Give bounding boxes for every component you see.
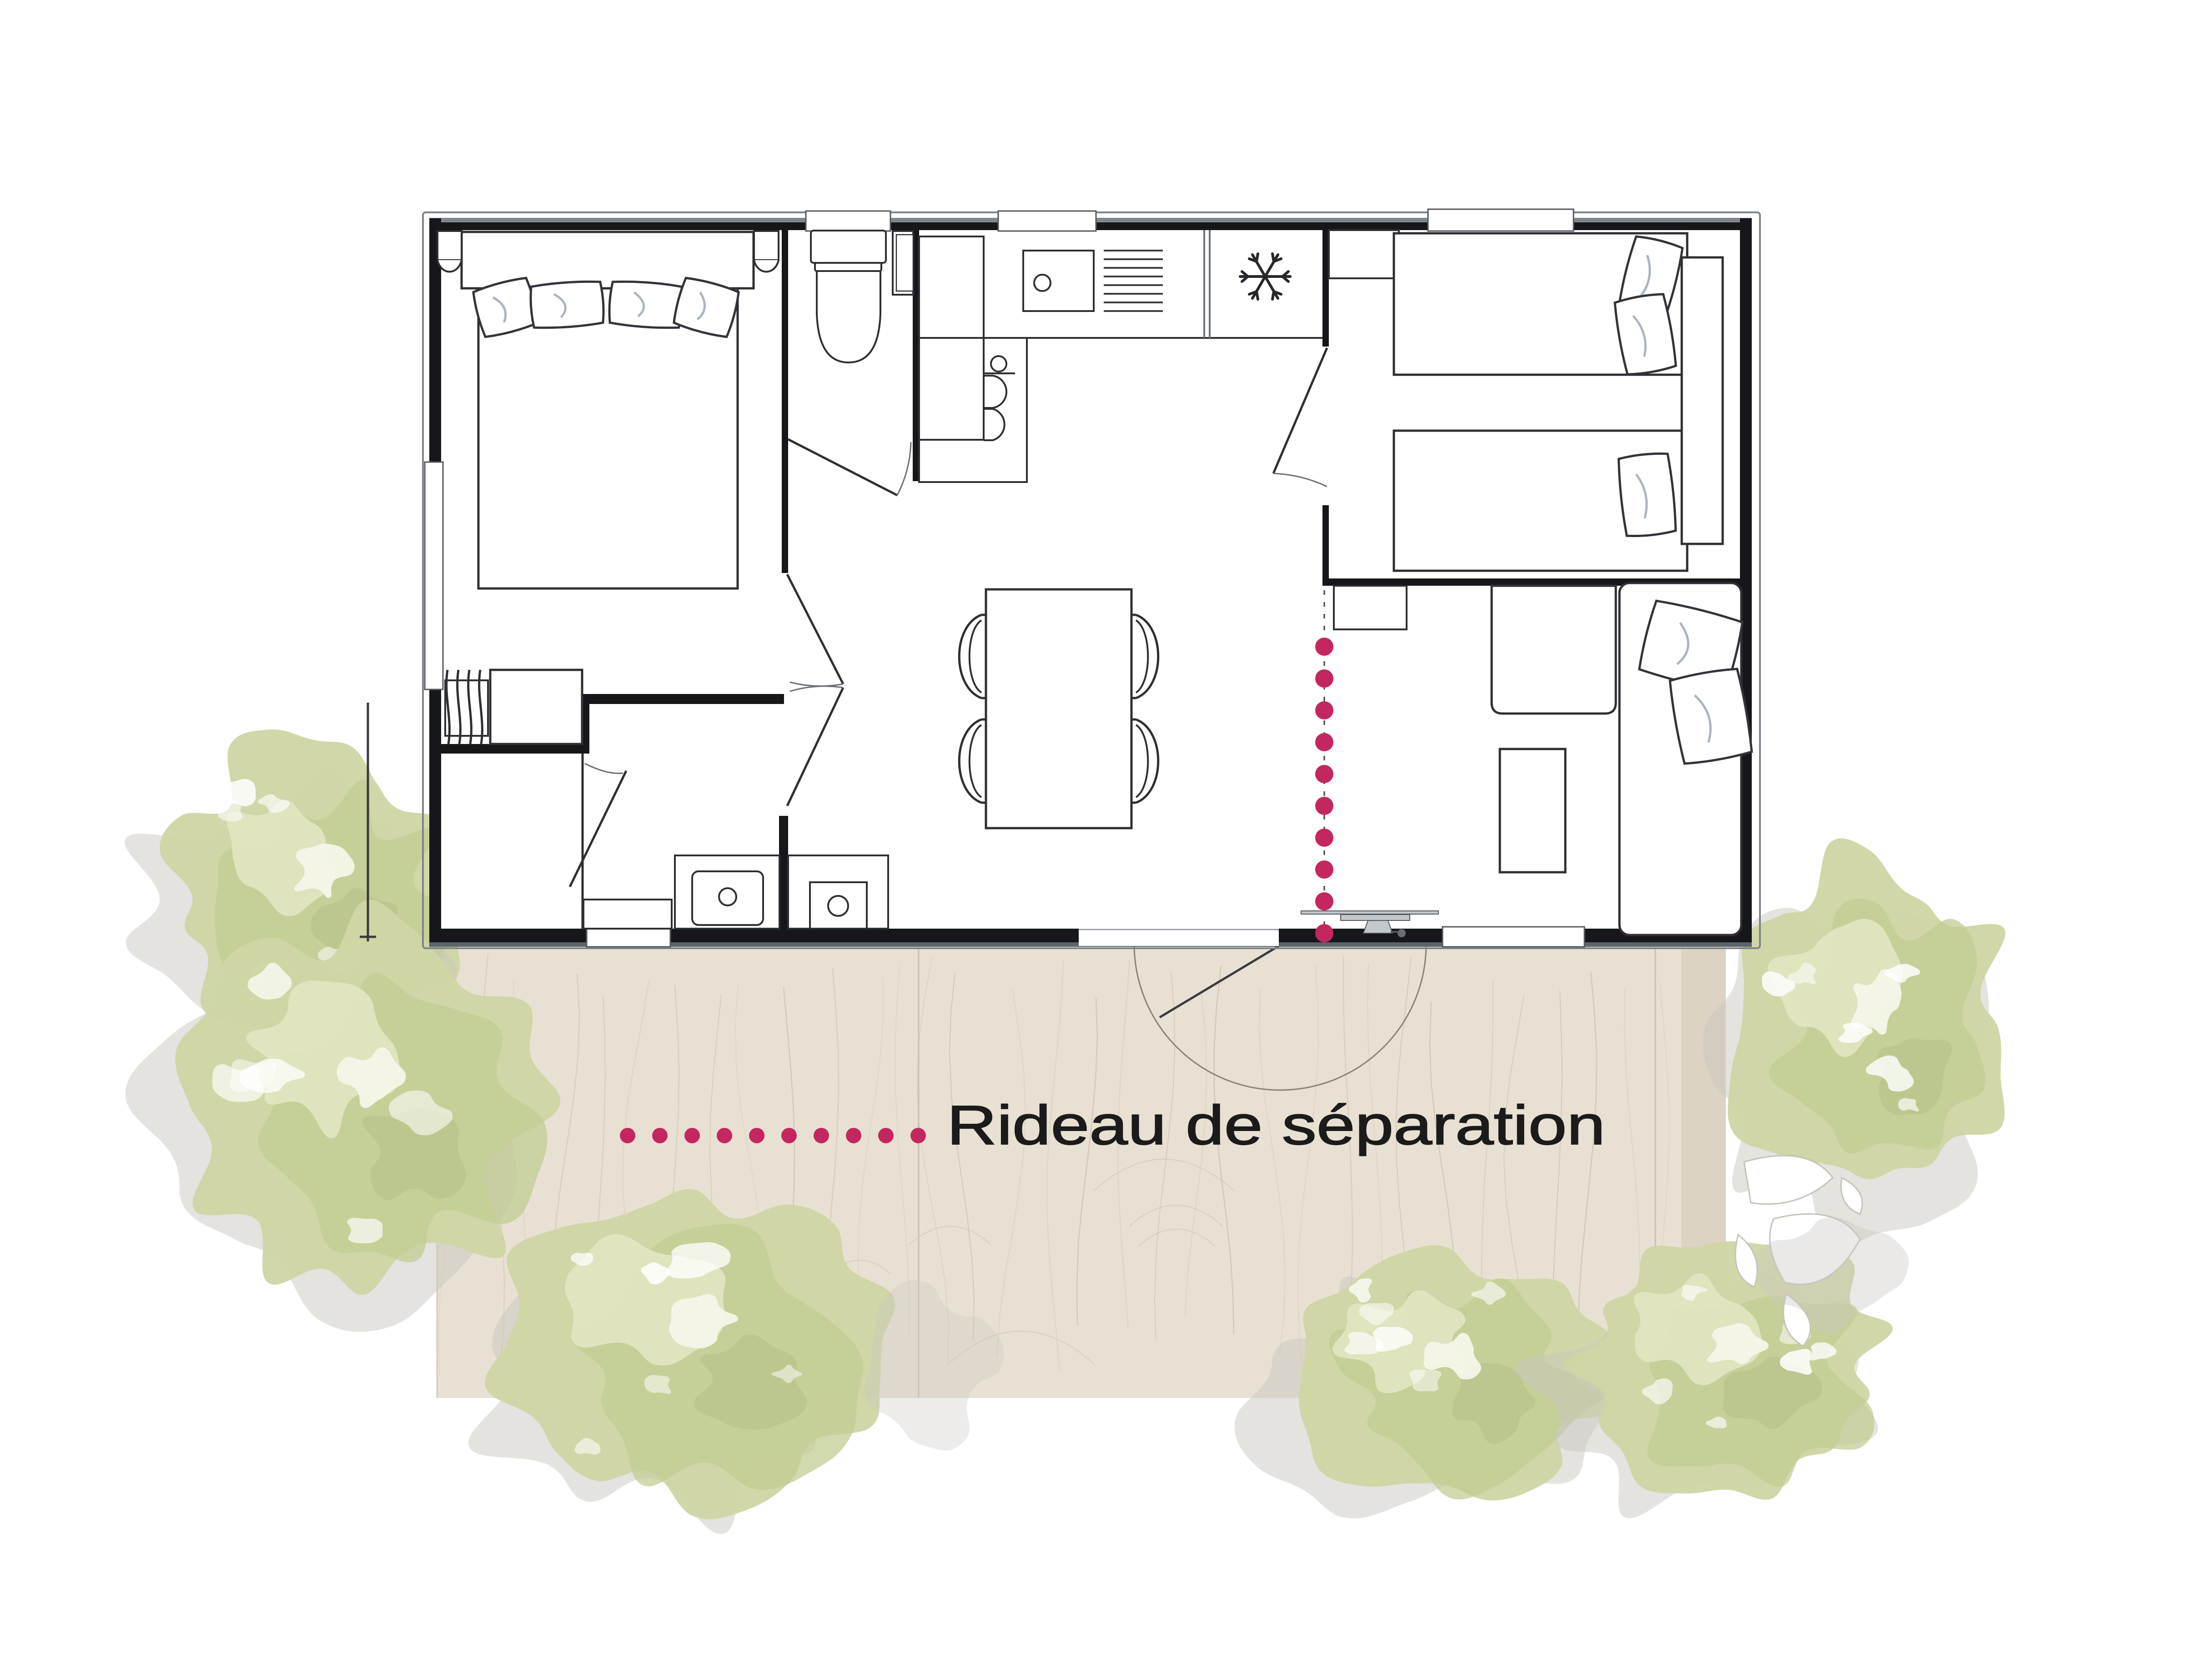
- svg-text:Rideau de séparation: Rideau de séparation: [947, 1094, 1605, 1156]
